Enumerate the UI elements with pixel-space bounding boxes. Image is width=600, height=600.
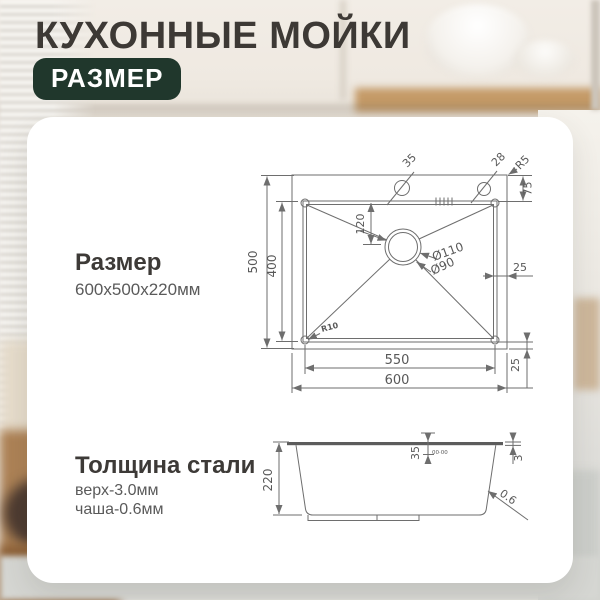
bottom-margin-label: 25	[509, 358, 522, 372]
rim-thickness-label: 3	[512, 455, 525, 462]
drain-inner-circle	[389, 233, 418, 262]
rim-depth-label: 35	[409, 446, 422, 460]
sink-top-view-drawing: 500 400 550 600 120 Ø110 Ø90 35 28 R5 75…	[240, 135, 550, 405]
thickness-section-heading: Толщина стали	[75, 452, 255, 480]
outer-height-label: 500	[246, 251, 260, 274]
tan-band-right	[574, 298, 600, 390]
faucet-hole-right	[478, 183, 491, 196]
bowl-thickness-label: 0.6	[497, 487, 519, 508]
inner-width-label: 550	[385, 353, 410, 368]
drain-ledge	[308, 515, 419, 521]
bottom-slope-diagonals	[307, 205, 493, 338]
wood-shelf	[355, 88, 600, 112]
drain-dia-leaders	[360, 231, 437, 272]
dim-rim-depth	[421, 433, 435, 464]
edge-radius-leader	[509, 169, 518, 175]
bowl-profile	[296, 445, 496, 515]
dim-inner-height	[276, 202, 298, 342]
sink-rim-profile	[287, 442, 503, 445]
drain-offset-label: 120	[354, 214, 367, 235]
size-badge: РАЗМЕР	[33, 58, 181, 100]
top-margin-label: 75	[522, 182, 535, 196]
cabinet-edge-right	[591, 0, 600, 110]
bowl-inner-line	[307, 205, 494, 339]
overflow-marks-label: 00·00	[432, 450, 448, 456]
hole-right-dia-label: 28	[489, 150, 508, 169]
size-section-heading: Размер	[75, 249, 161, 277]
inner-height-label: 400	[265, 255, 279, 278]
sink-side-view-drawing: 220 35 00·00 3 0.6	[250, 420, 550, 540]
thickness-bowl-value: чаша-0.6мм	[75, 501, 164, 519]
right-margin-label: 25	[513, 261, 527, 274]
hole-right-leader	[471, 171, 497, 203]
hole-left-dia-label: 35	[400, 151, 419, 170]
depth-label: 220	[261, 469, 275, 492]
drain-outer-circle	[385, 229, 421, 265]
page-title: КУХОННЫЕ МОЙКИ	[35, 15, 555, 58]
product-infographic: КУХОННЫЕ МОЙКИ РАЗМЕР Размер 600x500x220…	[0, 0, 600, 600]
thickness-top-value: верх-3.0мм	[75, 482, 159, 500]
outer-width-label: 600	[385, 373, 410, 388]
dim-outer-width	[292, 353, 533, 393]
size-value: 600x500x220мм	[75, 280, 200, 300]
bowl-outer-line	[303, 201, 497, 342]
